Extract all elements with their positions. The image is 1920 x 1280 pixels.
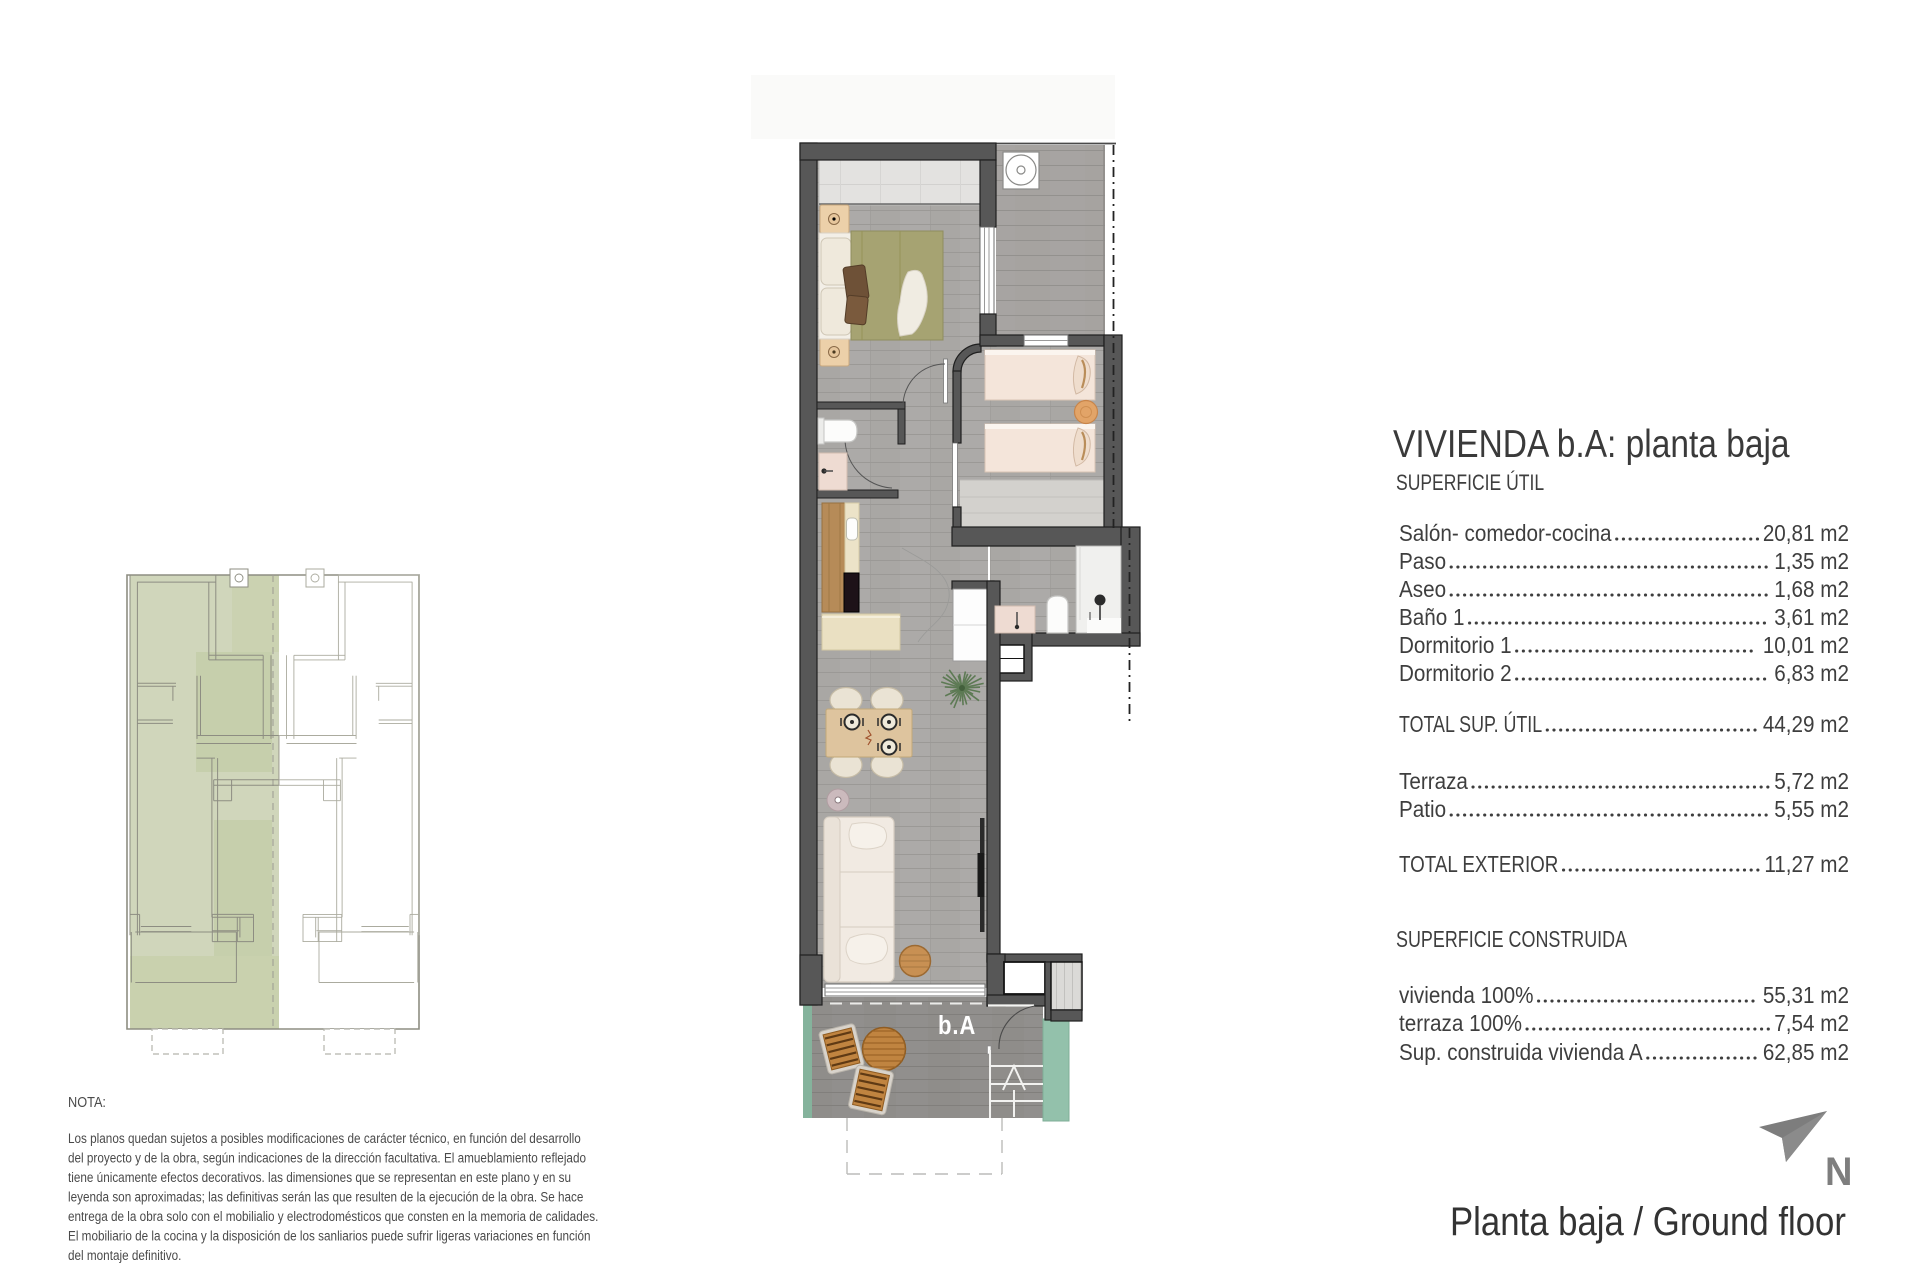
svg-text:entrega de la obra solo con el: entrega de la obra solo con el mobiliali…	[68, 1208, 598, 1224]
svg-text:44,29 m2: 44,29 m2	[1763, 711, 1849, 738]
svg-text:62,85 m2: 62,85 m2	[1763, 1039, 1849, 1066]
svg-text:leyenda son aproximadas; las d: leyenda son aproximadas; las definitivas…	[68, 1189, 583, 1205]
svg-text:Aseo: Aseo	[1399, 576, 1446, 603]
svg-text:5,72 m2: 5,72 m2	[1774, 768, 1849, 795]
svg-text:10,01 m2: 10,01 m2	[1763, 632, 1849, 659]
svg-text:Salón- comedor-cocina: Salón- comedor-cocina	[1399, 520, 1612, 547]
svg-text:TOTAL SUP. ÚTIL: TOTAL SUP. ÚTIL	[1399, 712, 1542, 738]
svg-text:b.A: b.A	[938, 1011, 976, 1040]
svg-text:1,35 m2: 1,35 m2	[1774, 548, 1849, 575]
svg-text:55,31 m2: 55,31 m2	[1763, 982, 1849, 1009]
svg-text:11,27 m2: 11,27 m2	[1764, 851, 1849, 878]
svg-text:Paso: Paso	[1399, 548, 1446, 575]
svg-text:Terraza: Terraza	[1399, 768, 1469, 795]
svg-text:vivienda 100%: vivienda 100%	[1399, 982, 1533, 1009]
svg-text:SUPERFICIE ÚTIL: SUPERFICIE ÚTIL	[1396, 470, 1544, 496]
svg-text:Baño 1: Baño 1	[1399, 604, 1465, 631]
svg-text:Patio: Patio	[1399, 796, 1446, 823]
svg-text:terraza 100%: terraza 100%	[1399, 1010, 1522, 1037]
svg-text:TOTAL EXTERIOR: TOTAL EXTERIOR	[1399, 851, 1558, 878]
svg-text:Sup. construida vivienda A: Sup. construida vivienda A	[1399, 1039, 1643, 1066]
svg-text:SUPERFICIE CONSTRUIDA: SUPERFICIE CONSTRUIDA	[1396, 927, 1627, 953]
svg-text:6,83 m2: 6,83 m2	[1774, 660, 1849, 687]
svg-text:VIVIENDA b.A: planta baja: VIVIENDA b.A: planta baja	[1393, 422, 1790, 466]
svg-text:20,81 m2: 20,81 m2	[1763, 520, 1849, 547]
svg-text:El mobiliario de la cocina y l: El mobiliario de la cocina y la disposic…	[68, 1228, 591, 1244]
svg-text:NOTA:: NOTA:	[68, 1093, 106, 1110]
svg-text:Planta baja / Ground floor: Planta baja / Ground floor	[1450, 1199, 1846, 1244]
svg-text:Dormitorio 1: Dormitorio 1	[1399, 632, 1512, 659]
svg-text:5,55 m2: 5,55 m2	[1774, 796, 1849, 823]
svg-text:7,54 m2: 7,54 m2	[1774, 1010, 1849, 1037]
svg-text:del montaje definitivo.: del montaje definitivo.	[68, 1247, 181, 1263]
svg-text:1,68 m2: 1,68 m2	[1774, 576, 1849, 603]
svg-text:tiene únicamente efectos decor: tiene únicamente efectos decorativos. la…	[68, 1169, 571, 1185]
svg-text:Dormitorio 2: Dormitorio 2	[1399, 660, 1512, 687]
svg-text:del proyecto y de la obra, seg: del proyecto y de la obra, según indicac…	[68, 1150, 586, 1166]
svg-text:Los planos quedan sujetos a po: Los planos quedan sujetos a posibles mod…	[68, 1130, 581, 1146]
svg-text:3,61 m2: 3,61 m2	[1774, 604, 1849, 631]
svg-text:N: N	[1825, 1150, 1852, 1194]
